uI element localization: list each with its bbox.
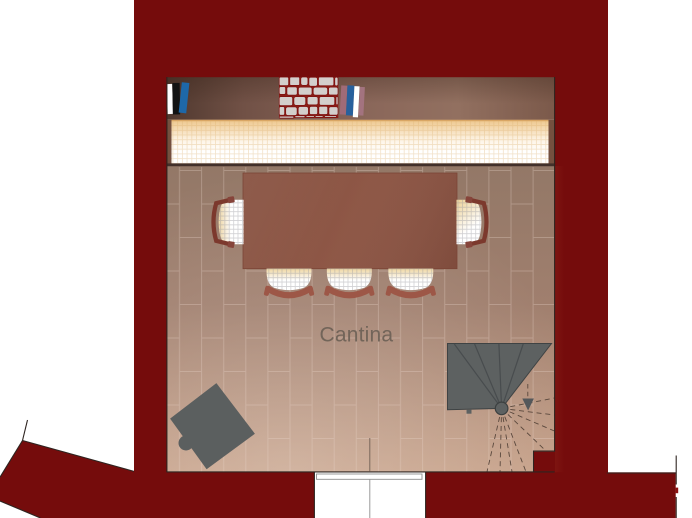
svg-text:Cantina: Cantina [320,324,394,347]
